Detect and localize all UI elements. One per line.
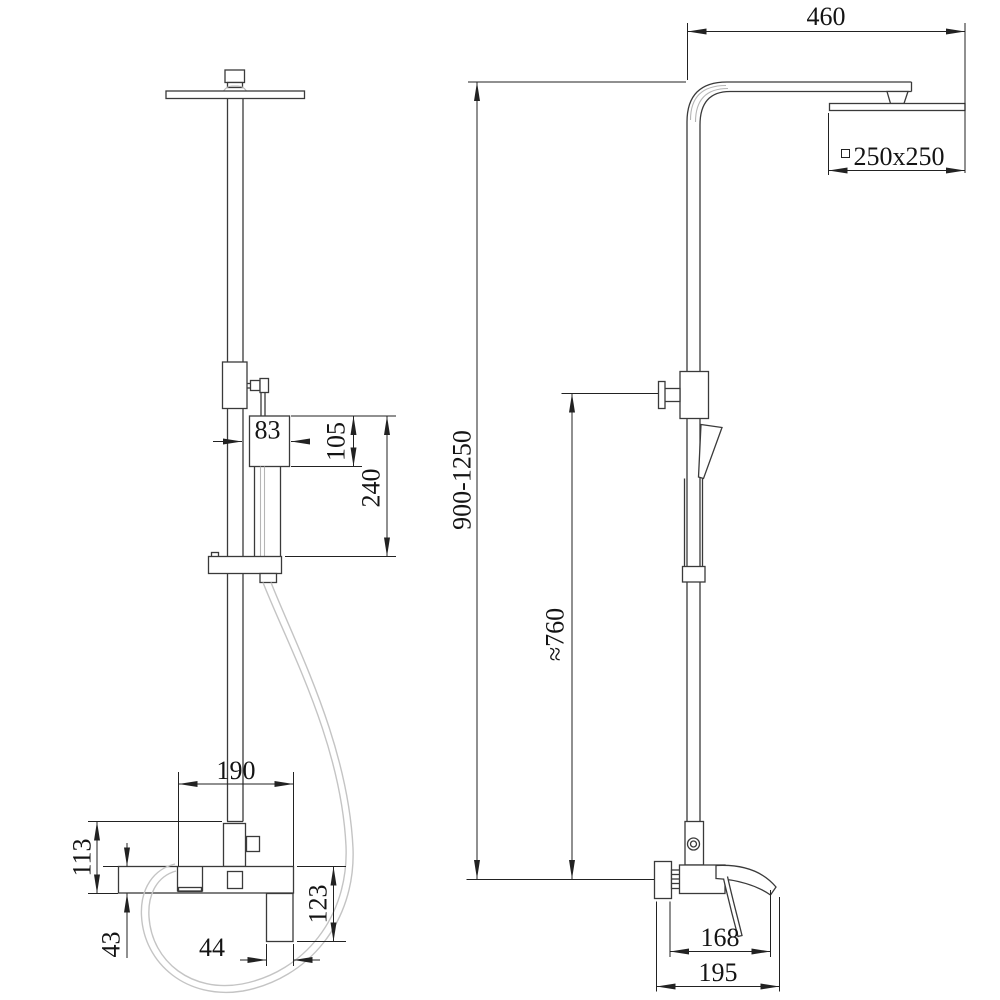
- slide-holder-bar: [209, 557, 282, 574]
- hose-connector-front: [260, 574, 277, 583]
- head-plate-side: [830, 104, 966, 111]
- mixer-side: [655, 822, 777, 937]
- dim-handle-drop: 123: [297, 867, 346, 942]
- square-symbol-icon: [842, 150, 850, 158]
- front-view: 83 105 240: [67, 70, 396, 992]
- mixer-body-front: [224, 824, 246, 867]
- dim-label-900-1250: 900-1250: [447, 430, 476, 530]
- dim-label-460: 460: [807, 2, 846, 31]
- dim-label-168: 168: [701, 923, 740, 952]
- dim-handle-width: 44: [199, 933, 320, 966]
- mixer-front: [119, 822, 294, 942]
- side-view: 460 250x250: [447, 2, 965, 992]
- dim-slide-bar-height: ≈760: [540, 394, 658, 880]
- top-connector: [225, 70, 245, 83]
- dim-label-44: 44: [199, 933, 225, 962]
- dim-label-83: 83: [255, 416, 281, 445]
- dim-head-size: 250x250: [829, 113, 966, 175]
- riser-pipe-side: [687, 82, 912, 822]
- dim-label-113: 113: [67, 838, 96, 876]
- dim-height-range: 900-1250: [447, 82, 686, 880]
- diverter-side: [659, 372, 709, 419]
- shower-head-side: [830, 92, 966, 111]
- technical-drawing-page: 83 105 240: [0, 0, 1000, 1000]
- hand-shower-side: [699, 425, 723, 479]
- dim-label-250x250: 250x250: [854, 142, 945, 171]
- slide-rail-side: [683, 479, 706, 583]
- head-plate-front: [166, 91, 305, 99]
- wall-escutcheon-side: [655, 862, 672, 899]
- dim-label-760: ≈760: [540, 608, 569, 661]
- dim-spout-height: 43: [96, 843, 127, 958]
- lever-handle-front: [267, 894, 294, 942]
- mixer-bar-front: [119, 867, 294, 894]
- dim-label-195: 195: [699, 958, 738, 987]
- ball-joint-side: [887, 92, 908, 104]
- dim-label-43: 43: [96, 932, 125, 958]
- dim-label-105: 105: [321, 422, 350, 461]
- slider-block-side: [683, 567, 706, 583]
- diverter-knob-side: [664, 389, 681, 402]
- dim-label-190: 190: [217, 756, 256, 785]
- slide-holder-front: [209, 553, 282, 583]
- riser-pipe-front: [228, 99, 244, 822]
- dim-spout-reach: 168: [670, 890, 771, 957]
- shower-head-front: [166, 70, 305, 99]
- diverter-front: [223, 362, 269, 416]
- diverter-knob-front: [251, 381, 261, 391]
- dim-label-123: 123: [303, 885, 332, 924]
- shower-system-drawing: 83 105 240: [0, 0, 1000, 1000]
- mixer-knob-front: [247, 837, 260, 852]
- dim-label-240: 240: [356, 469, 385, 508]
- shower-hose: [141, 583, 353, 993]
